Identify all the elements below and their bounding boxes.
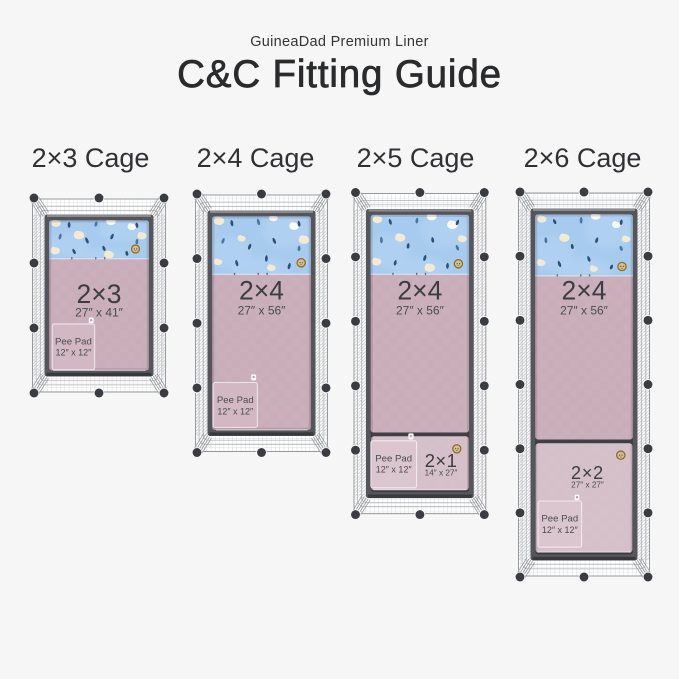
svg-text:12″ x 12″: 12″ x 12″ (55, 348, 92, 358)
svg-text:27″ x 56″: 27″ x 56″ (560, 304, 609, 318)
svg-text:2×4: 2×4 (397, 276, 442, 306)
svg-text:27″ x 56″: 27″ x 56″ (396, 304, 445, 318)
svg-text:27″ x 56″: 27″ x 56″ (238, 304, 287, 318)
svg-text:27″ x 27″: 27″ x 27″ (571, 481, 604, 490)
svg-text:Pee Pad: Pee Pad (55, 336, 92, 347)
svg-text:12″ x 12″: 12″ x 12″ (217, 406, 254, 416)
svg-text:14″ x 27″: 14″ x 27″ (425, 468, 458, 477)
svg-text:Pee Pad: Pee Pad (541, 514, 578, 525)
svg-text:2×4: 2×4 (239, 276, 284, 306)
svg-text:27″ x 41″: 27″ x 41″ (75, 306, 124, 320)
svg-text:Pee Pad: Pee Pad (375, 453, 412, 464)
svg-text:2×3: 2×3 (77, 279, 122, 309)
svg-text:2×4: 2×4 (562, 276, 607, 306)
svg-text:Pee Pad: Pee Pad (217, 395, 254, 406)
svg-text:12″ x 12″: 12″ x 12″ (376, 465, 413, 475)
svg-text:12″ x 12″: 12″ x 12″ (542, 525, 579, 535)
